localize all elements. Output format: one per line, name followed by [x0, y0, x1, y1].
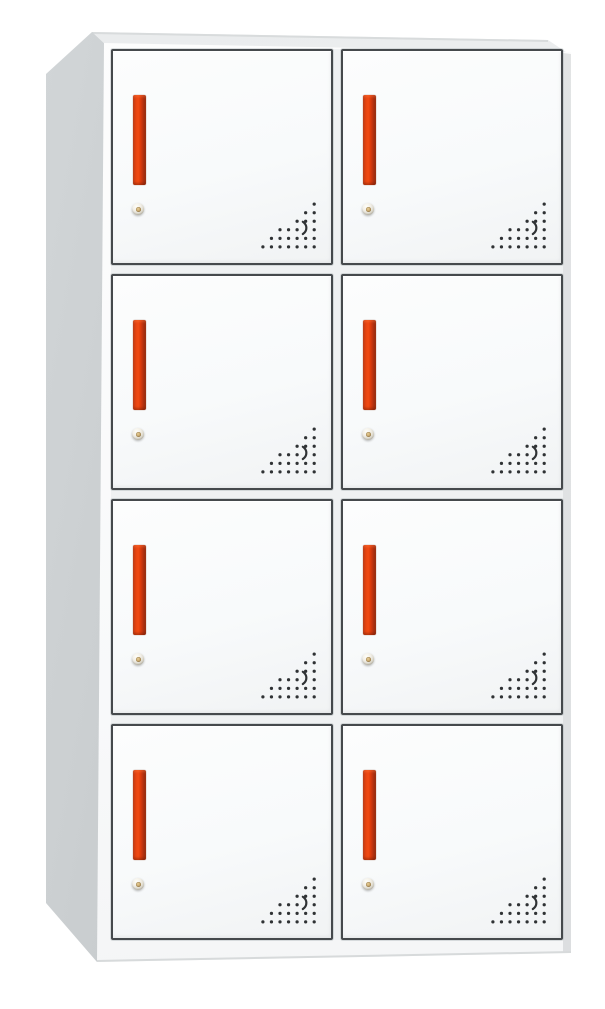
- door-handle-icon[interactable]: [363, 545, 376, 635]
- vent-holes-icon: [491, 202, 548, 250]
- keyhole-lock-icon[interactable]: [132, 878, 144, 890]
- keyhole-lock-icon[interactable]: [362, 878, 374, 890]
- keyhole-lock-icon[interactable]: [132, 203, 144, 215]
- vent-holes-icon: [491, 427, 548, 475]
- vent-holes-icon: [261, 652, 318, 700]
- locker-door[interactable]: [111, 274, 333, 490]
- locker-door-grid: [111, 49, 563, 940]
- door-handle-icon[interactable]: [133, 545, 146, 635]
- keyhole-lock-icon[interactable]: [132, 653, 144, 665]
- door-handle-icon[interactable]: [133, 770, 146, 860]
- vent-holes-icon: [261, 877, 318, 925]
- door-handle-icon[interactable]: [363, 770, 376, 860]
- locker-door[interactable]: [111, 499, 333, 715]
- locker-door[interactable]: [341, 274, 563, 490]
- door-handle-icon[interactable]: [133, 95, 146, 185]
- vent-holes-icon: [261, 202, 318, 250]
- locker-door[interactable]: [111, 49, 333, 265]
- keyhole-lock-icon[interactable]: [362, 428, 374, 440]
- locker-door[interactable]: [111, 724, 333, 940]
- vent-holes-icon: [491, 877, 548, 925]
- door-handle-icon[interactable]: [363, 95, 376, 185]
- keyhole-lock-icon[interactable]: [132, 428, 144, 440]
- locker-product-photo: [0, 0, 605, 1009]
- locker-door[interactable]: [341, 724, 563, 940]
- door-handle-icon[interactable]: [363, 320, 376, 410]
- keyhole-lock-icon[interactable]: [362, 203, 374, 215]
- vent-holes-icon: [491, 652, 548, 700]
- keyhole-lock-icon[interactable]: [362, 653, 374, 665]
- locker-door[interactable]: [341, 499, 563, 715]
- vent-holes-icon: [261, 427, 318, 475]
- door-handle-icon[interactable]: [133, 320, 146, 410]
- locker-door[interactable]: [341, 49, 563, 265]
